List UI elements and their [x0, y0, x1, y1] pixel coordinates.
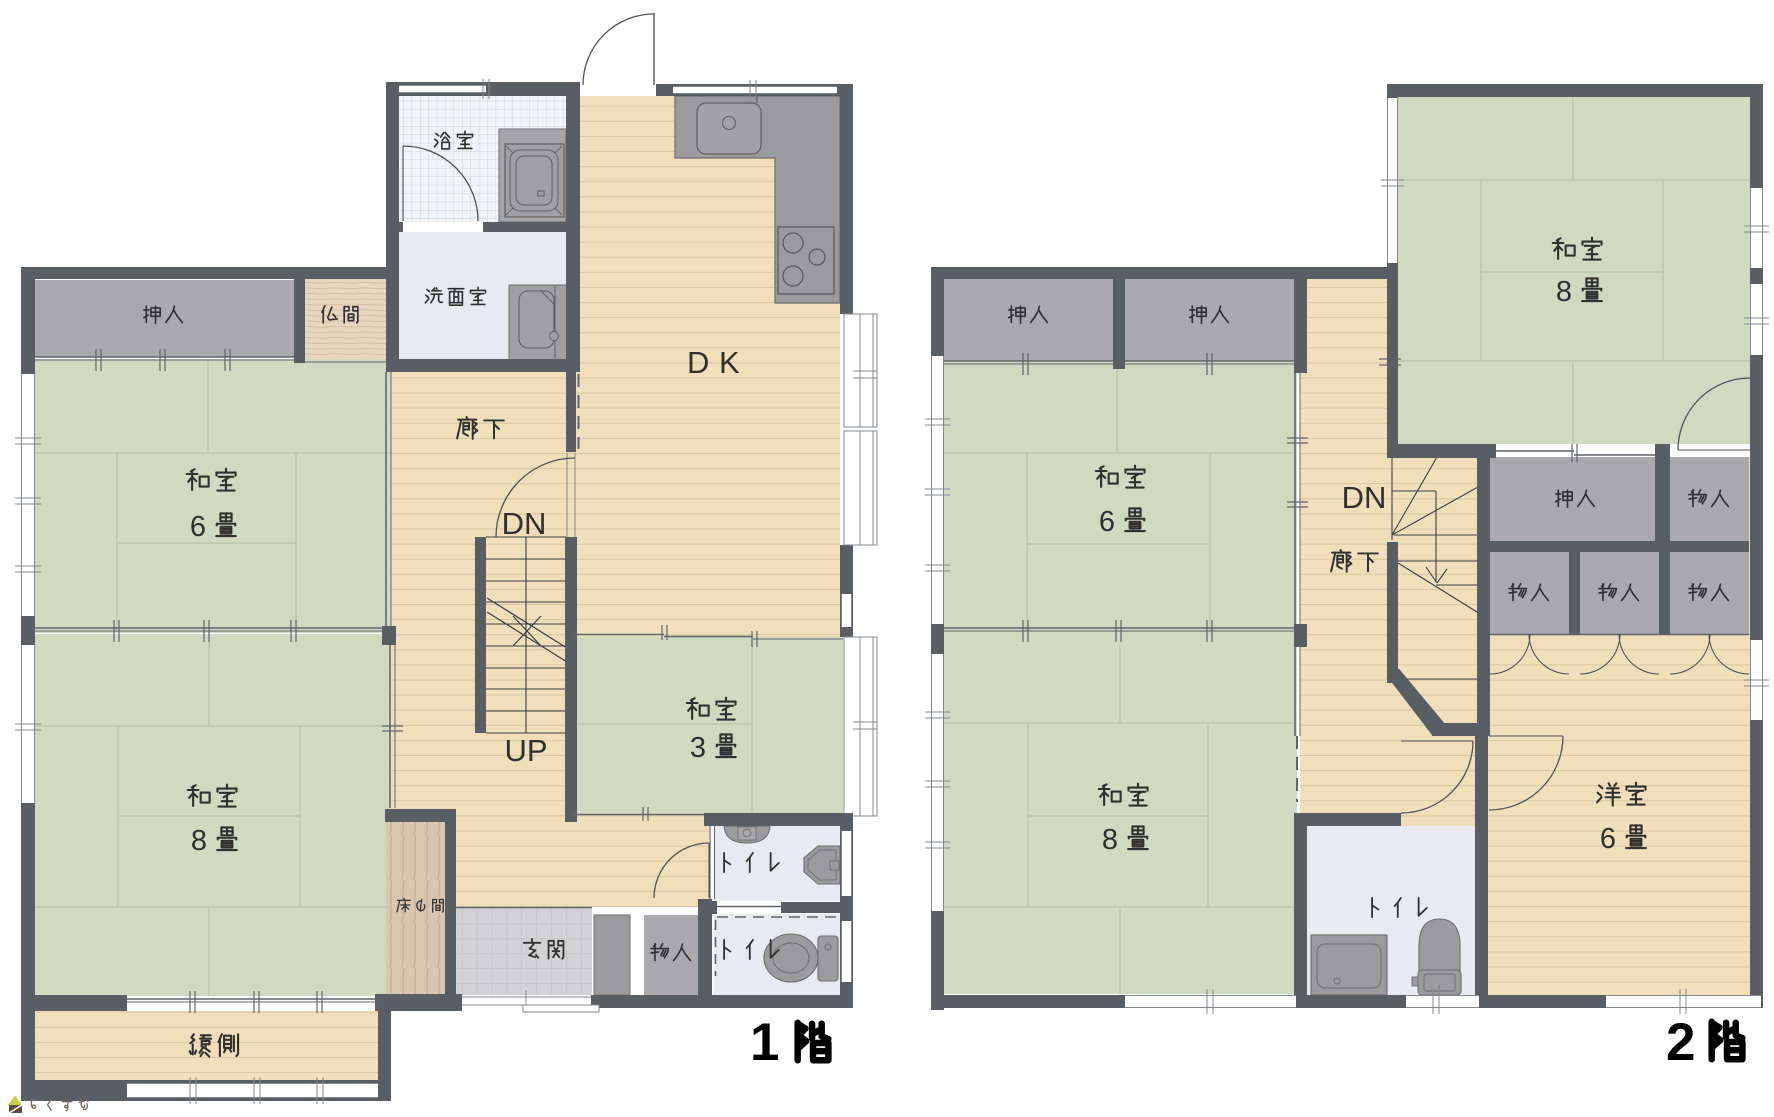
svg-text:8: 8 [1556, 276, 1572, 308]
svg-text:K: K [719, 345, 740, 380]
svg-text:2: 2 [1666, 1013, 1695, 1072]
svg-text:DN: DN [502, 506, 547, 541]
svg-text:3: 3 [690, 732, 706, 764]
svg-text:UP: UP [504, 733, 547, 768]
svg-text:1: 1 [750, 1013, 779, 1072]
svg-text:DN: DN [1342, 480, 1387, 515]
svg-text:8: 8 [1102, 824, 1118, 856]
svg-text:6: 6 [1099, 506, 1115, 538]
svg-text:8: 8 [191, 825, 207, 857]
svg-text:6: 6 [190, 511, 206, 543]
svg-text:D: D [687, 345, 709, 380]
svg-text:6: 6 [1600, 823, 1616, 855]
